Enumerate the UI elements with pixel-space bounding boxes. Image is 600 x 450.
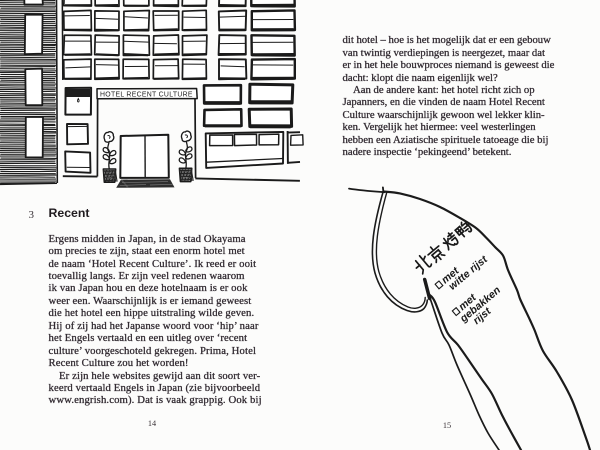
svg-text:HOTEL RECENT CULTURE: HOTEL RECENT CULTURE xyxy=(100,91,193,98)
